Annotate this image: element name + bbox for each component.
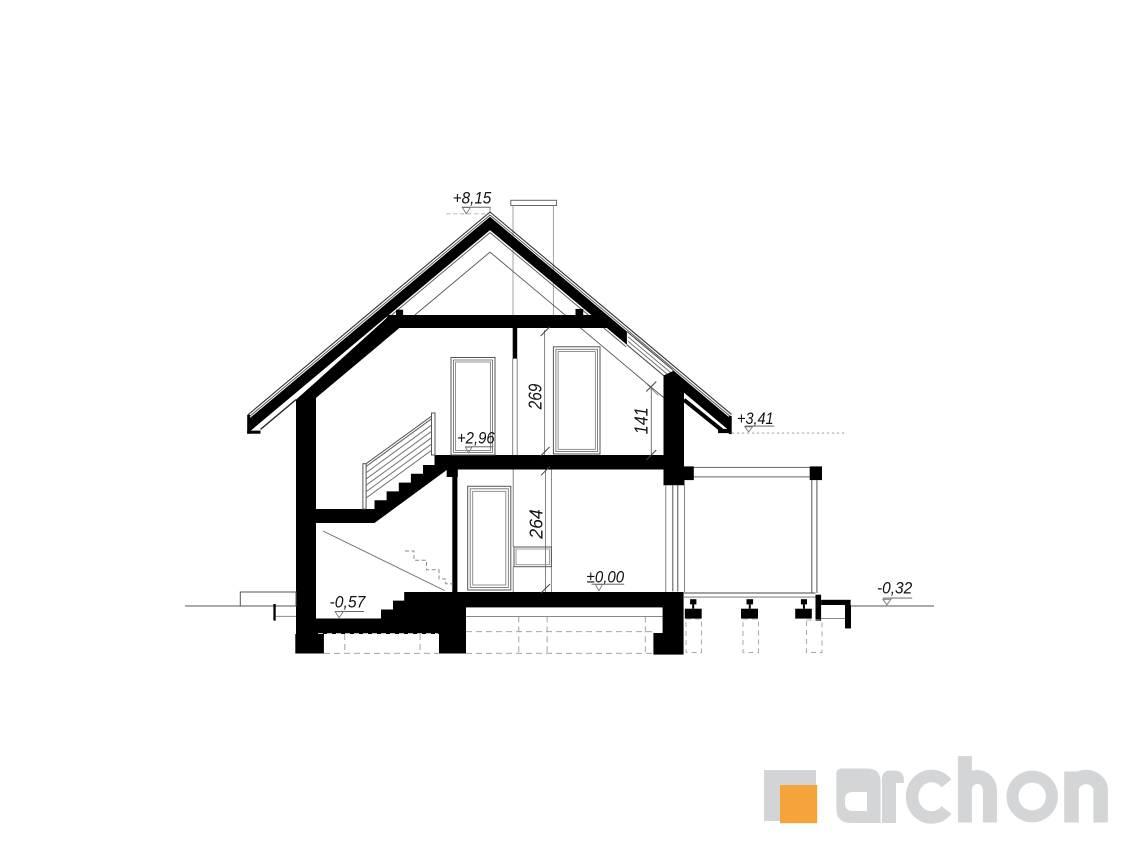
svg-text:-0,32: -0,32 bbox=[877, 579, 913, 598]
svg-text:+3,41: +3,41 bbox=[737, 409, 774, 428]
svg-text:141: 141 bbox=[631, 407, 652, 434]
svg-text:269: 269 bbox=[524, 383, 545, 410]
svg-text:-0,57: -0,57 bbox=[330, 592, 366, 611]
svg-text:±0,00: ±0,00 bbox=[587, 567, 625, 586]
svg-text:264: 264 bbox=[526, 509, 547, 539]
svg-text:+8,15: +8,15 bbox=[453, 188, 492, 207]
svg-text:+2,96: +2,96 bbox=[457, 429, 495, 448]
